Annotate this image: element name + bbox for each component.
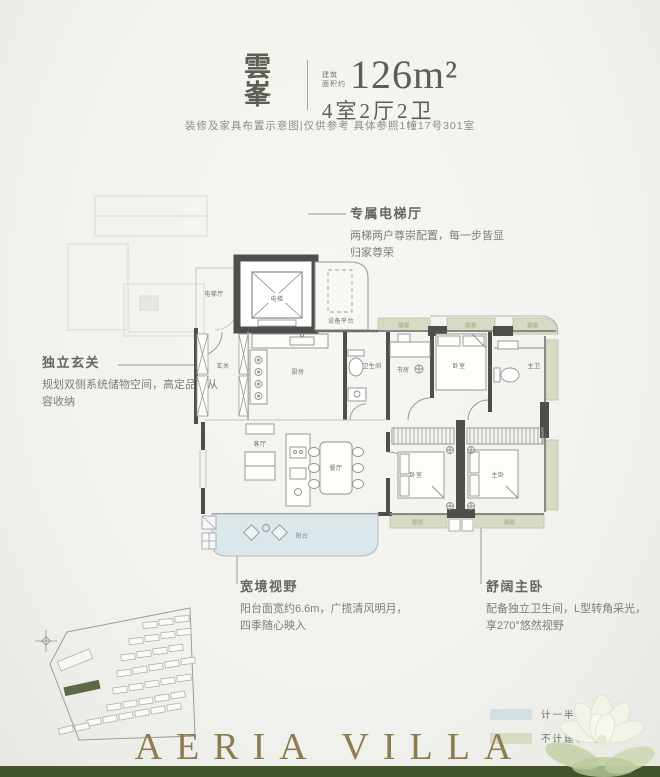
room-label-living-room: 客厅	[253, 440, 266, 448]
master-bathroom-fixtures	[494, 341, 544, 382]
bay-window-label: 飘窗	[398, 322, 409, 329]
bedroom-bottom	[392, 428, 454, 510]
room-label-kitchen: 厨房	[291, 368, 304, 376]
room-label-master-bedroom: 主卧	[491, 471, 504, 479]
living-room-furniture	[245, 424, 275, 480]
site-highlighted-building	[63, 680, 100, 696]
room-label-bedroom-bottom: 卧室	[409, 471, 422, 479]
balcony: 阳台	[202, 514, 378, 556]
room-label-foyer: 玄关	[216, 362, 229, 370]
room-label-master-bathroom: 主卫	[527, 362, 540, 370]
bay-window-label: 飘窗	[504, 519, 515, 526]
bay-window-label: 飘窗	[465, 322, 476, 329]
room-label-elevator-hall: 电梯厅	[204, 290, 224, 298]
flower-decoration	[520, 662, 660, 777]
compass-icon	[35, 630, 57, 652]
room-label-balcony: 阳台	[295, 532, 308, 540]
kitchen-fixtures	[250, 334, 328, 405]
bathroom-fixtures	[348, 350, 366, 401]
site-buildings	[58, 615, 195, 734]
room-label-study: 书房	[396, 366, 409, 374]
equipment-platform: 设备平台	[315, 262, 368, 330]
poster-page: 雲 峯 建筑 面积约 126m² 4室2厅2卫 装修及家具布置示意图|仅供参考 …	[0, 0, 660, 777]
bay-window-label: 飘窗	[412, 519, 423, 526]
bedroom-top	[436, 334, 486, 390]
neighbour-unit-ghost	[68, 196, 207, 336]
room-label-equipment-platform: 设备平台	[328, 317, 354, 325]
elevator-hall: 电梯厅	[196, 268, 237, 330]
room-label-dining-room: 餐厅	[329, 464, 342, 472]
room-label-elevator: 电梯	[270, 295, 283, 303]
elevator-shaft: 电梯	[237, 258, 315, 330]
foyer-storage	[197, 334, 248, 416]
room-label-bathroom: 卫生间	[362, 362, 382, 370]
room-label-bedroom-top: 卧室	[452, 362, 465, 370]
master-bedroom	[467, 428, 543, 510]
kitchen-island	[286, 434, 310, 506]
site-building	[57, 649, 92, 671]
bay-window-label: 飘窗	[527, 322, 538, 329]
